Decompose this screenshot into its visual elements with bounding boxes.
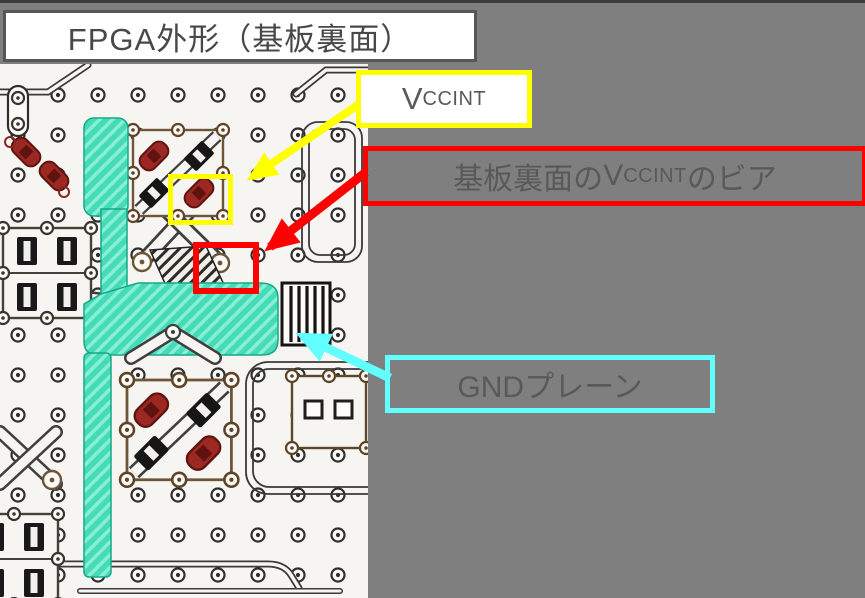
pcb-art	[0, 64, 368, 598]
page-title: FPGA外形（基板裏面）	[3, 10, 477, 62]
gnd-label: GNDプレーン	[385, 355, 715, 413]
via-label-suffix: のビア	[687, 154, 777, 198]
vccint-label-small: CCINT	[423, 88, 487, 111]
via-label-prefix: 基板裏面の	[453, 154, 603, 198]
via-label: 基板裏面のVCCINTのビア	[363, 146, 865, 206]
vccint-label: VCCINT	[356, 70, 532, 128]
vccint-via-marker	[168, 174, 233, 225]
gnd-label-text: GNDプレーン	[457, 362, 642, 406]
via-marker	[193, 242, 259, 294]
ladder-component	[282, 283, 330, 345]
vccint-label-cap: V	[402, 81, 423, 117]
via-label-cap: V	[603, 159, 623, 193]
page-title-text: FPGA外形（基板裏面）	[68, 14, 412, 59]
pcb-layout-image	[0, 64, 368, 598]
slide: FPGA外形（基板裏面）	[0, 0, 865, 598]
via-label-small: CCINT	[623, 165, 687, 188]
slide-top-border	[0, 0, 865, 3]
